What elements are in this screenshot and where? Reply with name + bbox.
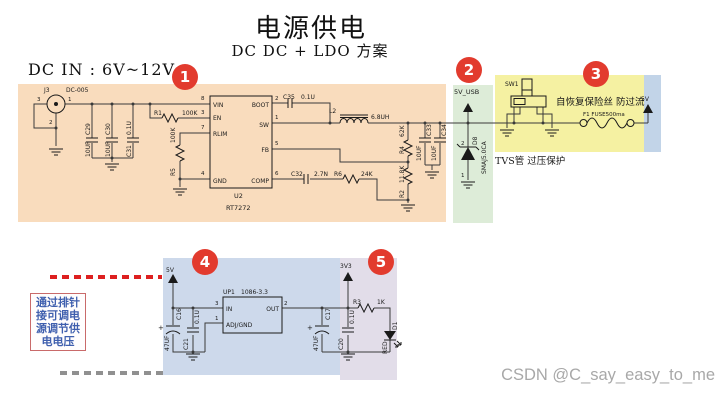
label-j3-ref: J3 bbox=[43, 87, 50, 94]
label-c21-ref: C21 bbox=[183, 338, 190, 350]
label-u2-gnd: GND bbox=[213, 178, 227, 185]
region-dcdc bbox=[18, 84, 446, 222]
label-d8-pin1: 1 bbox=[461, 173, 465, 179]
label-up1-pin2: 2 bbox=[284, 301, 288, 307]
label-c32-val: 2.7N bbox=[314, 171, 328, 178]
label-c34-ref: C34 bbox=[441, 124, 448, 136]
label-l2-ref: L2 bbox=[329, 108, 336, 115]
badge-2-number: 2 bbox=[464, 61, 474, 79]
label-sw1-ref: SW1 bbox=[505, 81, 519, 88]
label-r3-val: 1K bbox=[377, 299, 386, 306]
label-u2-boot: BOOT bbox=[252, 102, 269, 109]
label-u2-pin6: 6 bbox=[275, 171, 279, 177]
label-c35-val: 0.1U bbox=[301, 94, 315, 101]
label-r6-ref: R6 bbox=[334, 171, 342, 178]
label-d1-val: RED bbox=[382, 341, 389, 354]
csdn-watermark: CSDN @C_say_easy_to_me bbox=[501, 366, 715, 385]
label-up1-pin3: 3 bbox=[215, 301, 219, 307]
label-u2-pin2: 2 bbox=[275, 96, 279, 102]
label-c17-val: 47UF bbox=[313, 335, 320, 351]
label-up1-adj: ADJ/GND bbox=[226, 322, 253, 329]
label-r3-ref: R3 bbox=[353, 299, 361, 306]
label-net-5v-ldo: 5V bbox=[166, 267, 175, 274]
label-j3-pin1: 1 bbox=[68, 97, 72, 103]
label-d1-ref: D1 bbox=[392, 321, 399, 330]
label-j3-pin3: 3 bbox=[37, 97, 41, 103]
label-u2-vin: VIN bbox=[213, 102, 223, 109]
label-c30-ref: C30 bbox=[105, 123, 112, 135]
label-u2-part: RT7272 bbox=[226, 204, 251, 212]
label-u2-en: EN bbox=[213, 115, 221, 122]
label-u2-pin3: 3 bbox=[201, 110, 205, 116]
label-r2-ref: R2 bbox=[399, 190, 406, 198]
label-c21-val: 0.1U bbox=[194, 310, 201, 324]
page-subtitle: DC DC + LDO 方案 bbox=[200, 40, 420, 61]
badge-5-number: 5 bbox=[376, 253, 386, 271]
label-u2-pin1: 1 bbox=[275, 115, 279, 121]
label-net-3v3: 3V3 bbox=[340, 263, 352, 270]
label-r5-ref: R5 bbox=[170, 168, 177, 176]
label-c32-ref: C32 bbox=[291, 171, 303, 178]
badge-1-number: 1 bbox=[180, 68, 190, 86]
slide-canvas: J3 DC-005 3 1 2 C29 10UF C30 10UF 0.1U C… bbox=[0, 0, 722, 401]
label-up1-in: IN bbox=[226, 306, 232, 313]
label-j3-part: DC-005 bbox=[66, 87, 89, 94]
label-up1-part: 1086-3.3 bbox=[241, 289, 268, 296]
label-net-5v-usb: 5V_USB bbox=[454, 88, 479, 96]
badge-4: 4 bbox=[192, 249, 218, 275]
label-c20-ref: C20 bbox=[338, 338, 345, 350]
label-u2-ref: U2 bbox=[234, 192, 243, 200]
label-c20-val: 0.1U bbox=[349, 310, 356, 324]
label-u2-pin5: 5 bbox=[275, 141, 279, 147]
region-5v-strip bbox=[644, 75, 661, 152]
label-c31-ref: C31 bbox=[126, 145, 133, 157]
label-d8-pin2: 2 bbox=[461, 141, 465, 147]
badge-3: 3 bbox=[583, 61, 609, 87]
label-c16-plus: + bbox=[158, 324, 164, 332]
label-l2-val: 6.8UH bbox=[371, 114, 389, 121]
label-f1: F1 FUSE500ma bbox=[583, 112, 625, 118]
badge-5: 5 bbox=[368, 249, 394, 275]
dc-in-label: DC IN : 6V~12V bbox=[28, 60, 175, 79]
note-line: 接可调电 bbox=[31, 309, 85, 322]
label-up1-out: OUT bbox=[266, 306, 279, 313]
label-r4-ref: R4 bbox=[399, 146, 406, 154]
label-c34-val: 10UF bbox=[431, 145, 438, 161]
note-line: 电电压 bbox=[31, 335, 85, 348]
label-d8-ref: D8 bbox=[472, 136, 479, 145]
label-j3-pin2: 2 bbox=[49, 120, 53, 126]
label-c16-val: 47UF bbox=[164, 335, 171, 351]
label-u2-fb: FB bbox=[261, 147, 269, 154]
note-line: 源调节供 bbox=[31, 322, 85, 335]
label-c16-ref: C16 bbox=[176, 308, 183, 320]
label-u2-comp: COMP bbox=[251, 178, 269, 185]
label-c17-ref: C17 bbox=[325, 308, 332, 320]
label-r2-val: 11.8K bbox=[399, 165, 406, 183]
label-c31-val: 0.1U bbox=[126, 121, 133, 135]
note-line: 通过排针 bbox=[31, 296, 85, 309]
label-c35-ref: C35 bbox=[283, 94, 295, 101]
label-u2-pin4: 4 bbox=[201, 171, 205, 177]
label-c29-ref: C29 bbox=[85, 123, 92, 135]
badge-3-number: 3 bbox=[591, 65, 601, 83]
adjustable-supply-note: 通过排针 接可调电 源调节供 电电压 bbox=[30, 293, 86, 351]
label-c30-val: 10UF bbox=[105, 141, 112, 157]
badge-1: 1 bbox=[172, 64, 198, 90]
label-r4-val: 62K bbox=[399, 124, 406, 137]
badge-2: 2 bbox=[456, 57, 482, 83]
badge-4-number: 4 bbox=[200, 253, 210, 271]
label-u2-sw: SW bbox=[259, 122, 269, 129]
fuse-note-text: 自恢复保险丝 防过流 bbox=[556, 96, 645, 108]
label-c33-val: 10UF bbox=[416, 145, 423, 161]
label-r1-ref: R1 bbox=[154, 110, 162, 117]
label-up1-pin1: 1 bbox=[215, 316, 219, 322]
label-r5-val: 100K bbox=[170, 127, 177, 143]
label-d8-part: SMAJ5.0CA bbox=[481, 140, 488, 174]
label-c29-val: 10UF bbox=[85, 141, 92, 157]
label-up1-ref: UP1 bbox=[223, 289, 235, 296]
label-r1-val: 100K bbox=[182, 110, 198, 117]
label-c33-ref: C33 bbox=[426, 124, 433, 136]
label-u2-pin8: 8 bbox=[201, 96, 205, 102]
label-u2-pin7: 7 bbox=[201, 125, 205, 131]
label-r6-val: 24K bbox=[361, 171, 374, 178]
label-c17-plus: + bbox=[307, 324, 313, 332]
tvs-note-text: TVS管 过压保护 bbox=[495, 155, 565, 167]
label-u2-rlim: RLIM bbox=[213, 131, 227, 138]
